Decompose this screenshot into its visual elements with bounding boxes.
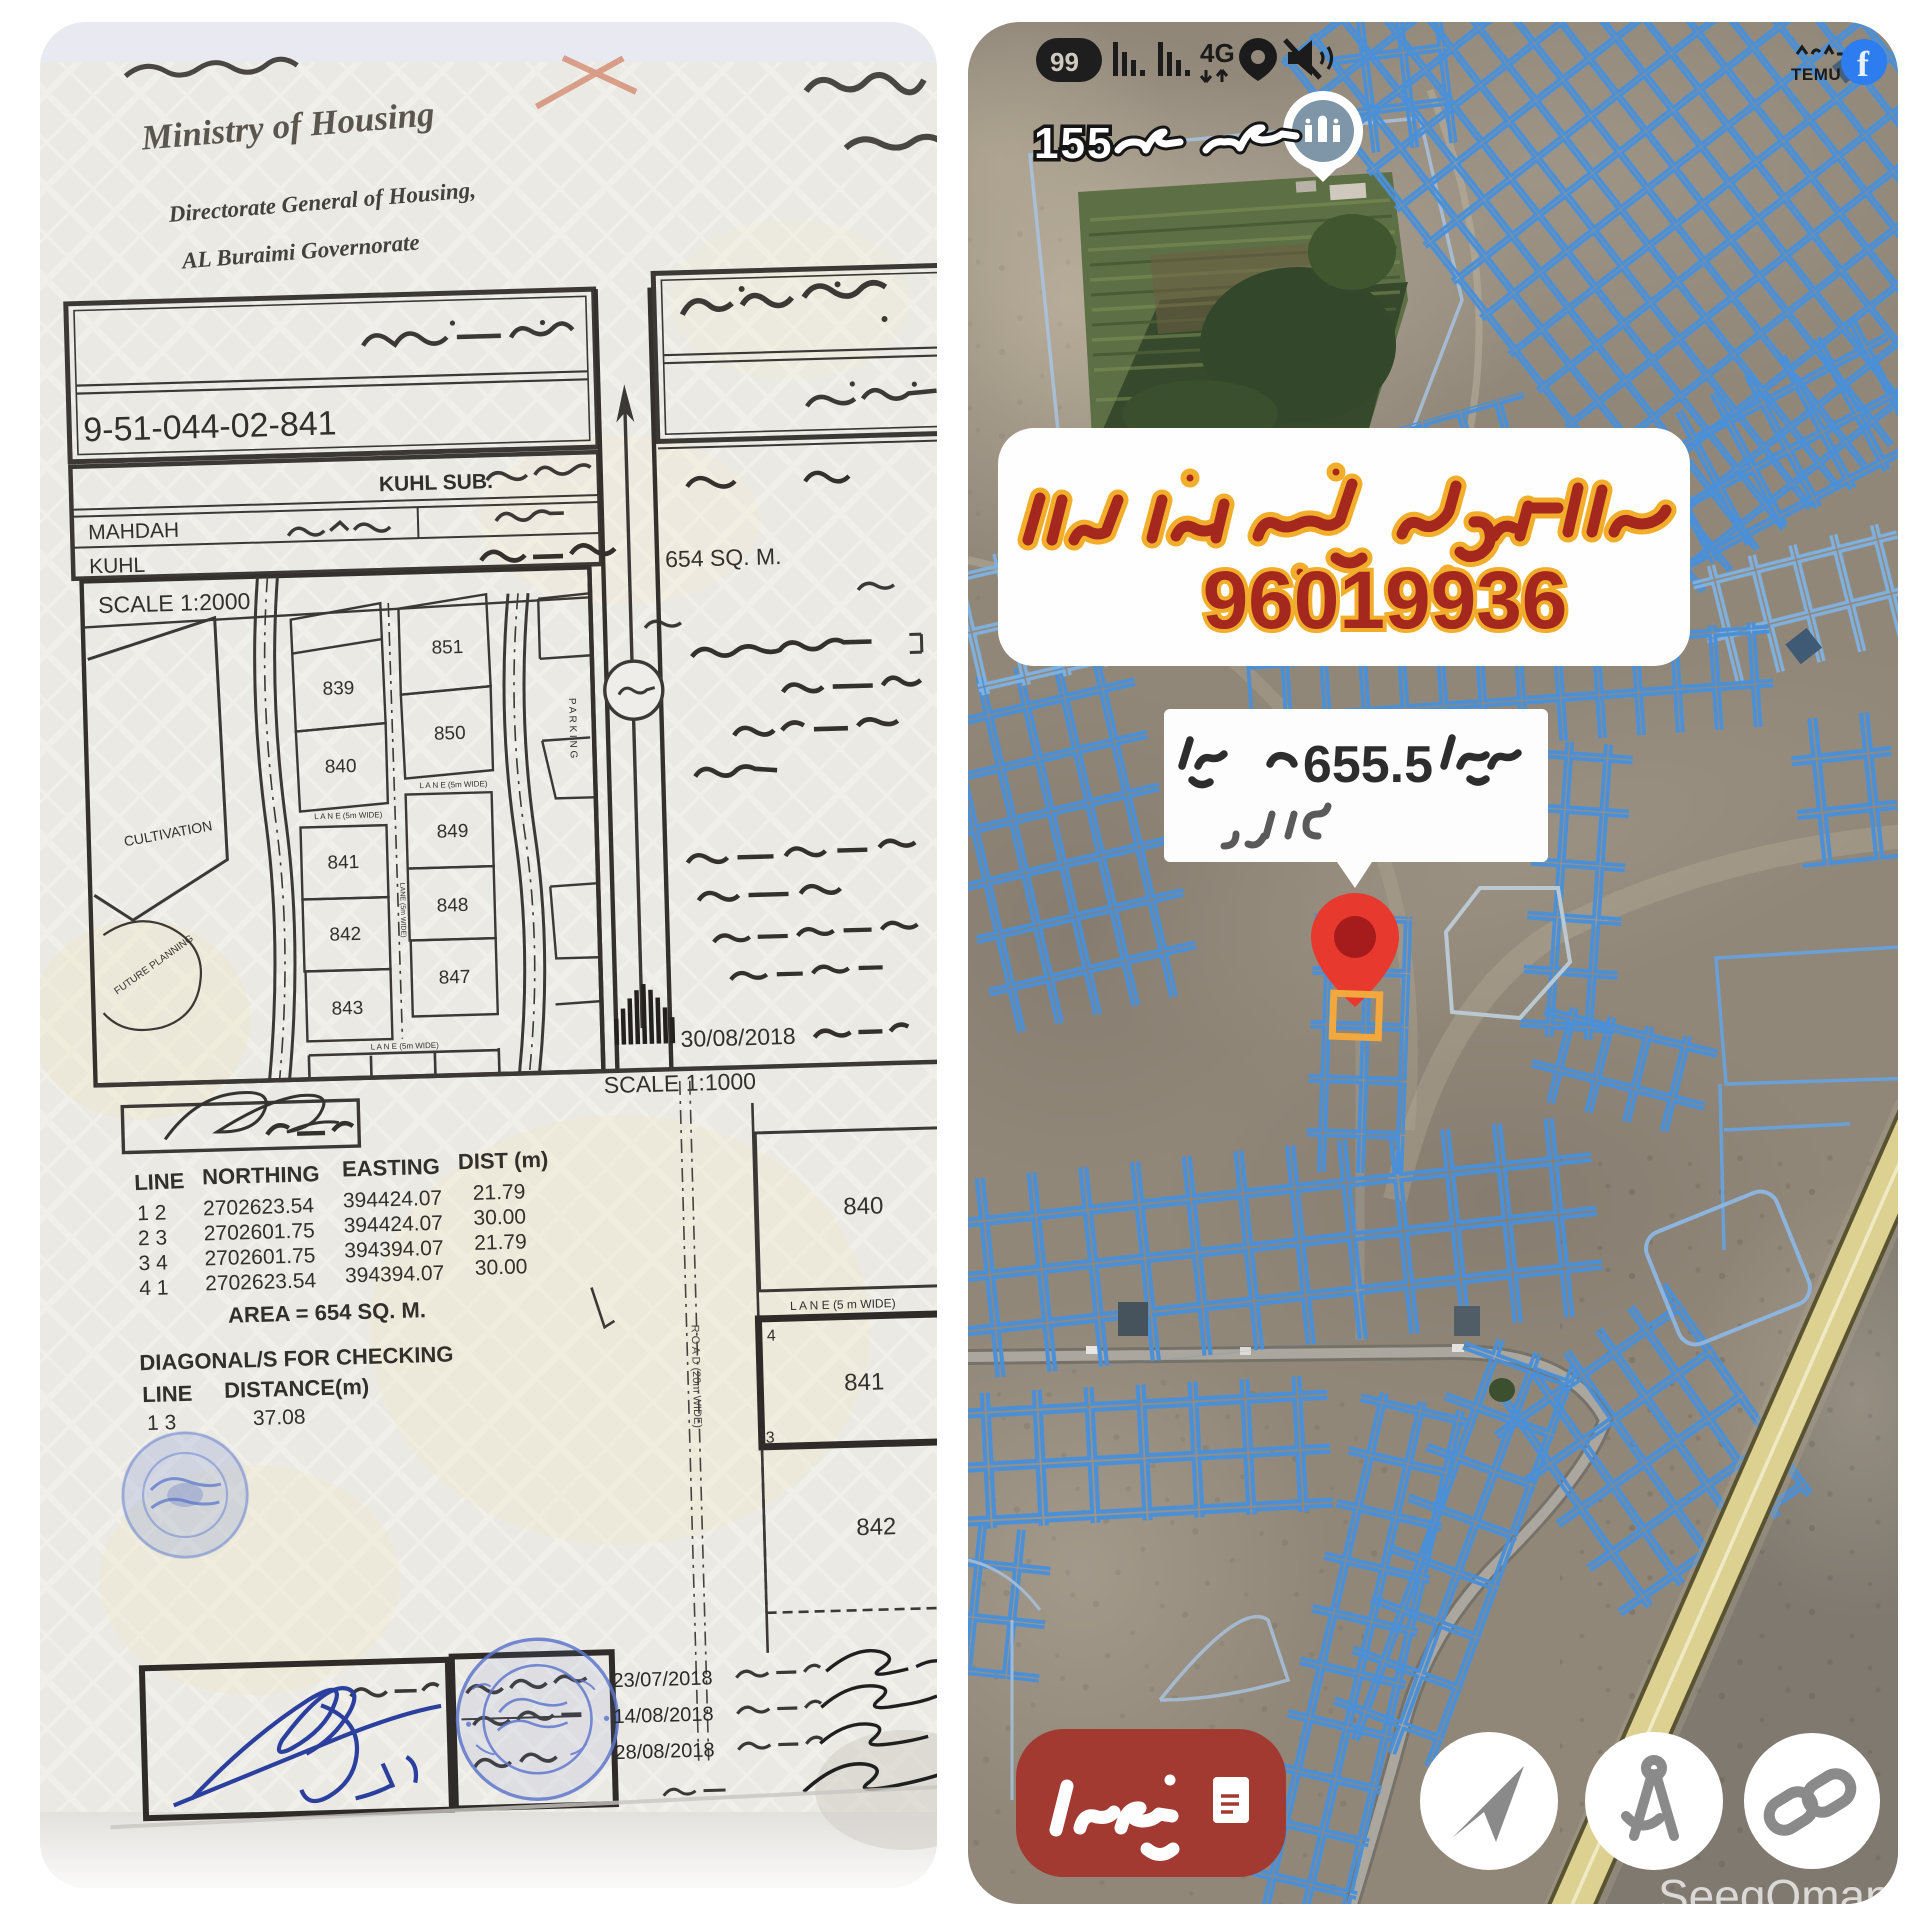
svg-text:f: f (1857, 44, 1870, 84)
svg-text:L A N E (5m WIDE): L A N E (5m WIDE) (371, 1041, 440, 1052)
svg-text:30.00: 30.00 (475, 1255, 528, 1279)
svg-text:847: 847 (438, 967, 470, 989)
svg-text:155: 155 (1034, 119, 1113, 168)
svg-text:840: 840 (325, 756, 357, 778)
svg-text:394424.07: 394424.07 (343, 1212, 443, 1238)
svg-text:30.00: 30.00 (473, 1205, 526, 1229)
svg-text:MAHDAH: MAHDAH (88, 519, 180, 545)
svg-text:KUHL SUB.: KUHL SUB. (379, 470, 494, 496)
svg-text:DIST (m): DIST (m) (458, 1147, 549, 1175)
svg-text:NORTHING: NORTHING (202, 1161, 320, 1189)
svg-text:L A N E (5m WIDE): L A N E (5m WIDE) (419, 779, 488, 790)
svg-text:2702623.54: 2702623.54 (203, 1194, 315, 1220)
svg-text:842: 842 (856, 1513, 897, 1541)
svg-text:P A R K I N G: P A R K I N G (566, 698, 579, 759)
svg-text:2702601.75: 2702601.75 (203, 1219, 315, 1245)
svg-text:EASTING: EASTING (342, 1154, 440, 1182)
svg-text:4G: 4G (1200, 38, 1235, 68)
svg-text:1 3: 1 3 (147, 1411, 177, 1435)
svg-text:842: 842 (329, 924, 361, 946)
svg-text:L A N E (5 m WIDE): L A N E (5 m WIDE) (790, 1296, 896, 1313)
svg-text:2702601.75: 2702601.75 (204, 1244, 316, 1270)
svg-text:21.79: 21.79 (474, 1230, 527, 1254)
svg-text:851: 851 (431, 637, 463, 659)
svg-text:LINE: LINE (134, 1168, 185, 1195)
svg-text:839: 839 (322, 678, 354, 700)
svg-text:850: 850 (434, 723, 466, 745)
svg-text:96019936: 96019936 (1203, 555, 1568, 646)
svg-text:4: 4 (767, 1327, 776, 1344)
svg-text:99: 99 (1050, 47, 1079, 77)
svg-text:2702623.54: 2702623.54 (205, 1269, 317, 1295)
svg-text:30/08/2018: 30/08/2018 (680, 1023, 796, 1052)
svg-text:TEMU: TEMU (1791, 65, 1841, 84)
svg-text:3 4: 3 4 (138, 1251, 168, 1275)
svg-text:28/08/2018: 28/08/2018 (614, 1739, 715, 1764)
svg-text:840: 840 (843, 1192, 884, 1220)
svg-text:841: 841 (327, 852, 359, 874)
svg-text:LINE: LINE (142, 1381, 193, 1407)
svg-text:37.08: 37.08 (253, 1406, 306, 1430)
svg-text:655.5: 655.5 (1303, 736, 1433, 794)
svg-text:1 2: 1 2 (137, 1201, 167, 1225)
svg-text:21.79: 21.79 (472, 1180, 525, 1204)
svg-text:9-51-044-02-841: 9-51-044-02-841 (83, 404, 337, 449)
svg-text:848: 848 (436, 895, 468, 917)
svg-text:KUHL: KUHL (89, 554, 146, 579)
svg-text:DISTANCE(m): DISTANCE(m) (224, 1374, 370, 1403)
svg-text:23/07/2018: 23/07/2018 (612, 1667, 713, 1692)
svg-text:849: 849 (436, 821, 468, 843)
svg-text:SCALE 1:2000: SCALE 1:2000 (98, 588, 251, 618)
svg-text:394394.07: 394394.07 (345, 1262, 445, 1288)
svg-text:843: 843 (331, 998, 363, 1020)
svg-text:654 SQ. M.: 654 SQ. M. (665, 543, 782, 572)
svg-text:L A N E (5m WIDE): L A N E (5m WIDE) (314, 810, 383, 821)
svg-text:14/08/2018: 14/08/2018 (613, 1703, 714, 1728)
svg-text:2 3: 2 3 (138, 1226, 168, 1250)
svg-text:394394.07: 394394.07 (344, 1237, 444, 1263)
svg-text:841: 841 (844, 1368, 885, 1396)
svg-text:394424.07: 394424.07 (343, 1187, 443, 1213)
svg-text:3: 3 (765, 1430, 774, 1447)
svg-text:4 1: 4 1 (139, 1276, 169, 1300)
